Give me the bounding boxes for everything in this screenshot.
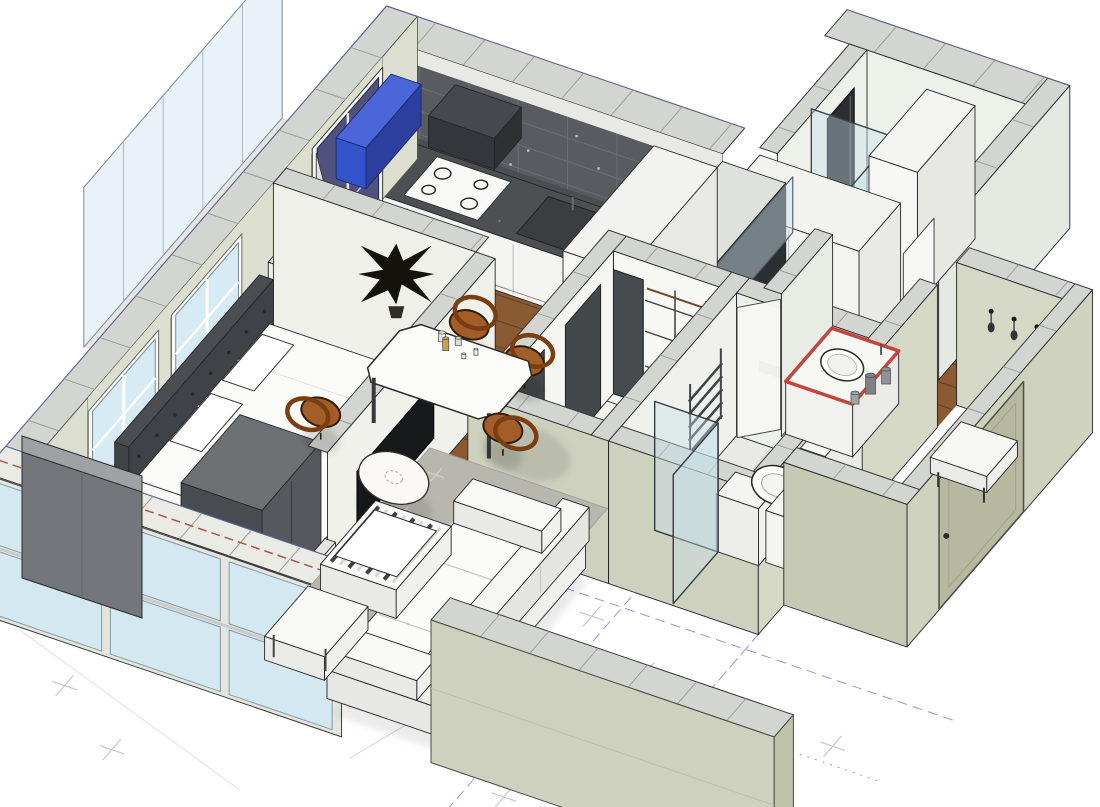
candle-top xyxy=(462,353,466,355)
headboard-button xyxy=(155,434,159,438)
plant xyxy=(358,244,434,305)
counter-speckle xyxy=(499,220,501,222)
tile-speckle xyxy=(597,167,599,169)
hanging-item xyxy=(1011,330,1018,340)
headboard-button xyxy=(209,372,213,376)
bottle-top xyxy=(851,391,859,395)
door-handle xyxy=(943,533,949,539)
headboard-button xyxy=(137,454,141,458)
tile-speckle xyxy=(509,163,511,165)
bottle-top xyxy=(882,367,891,371)
tile-speckle xyxy=(575,135,577,137)
bottle-top xyxy=(443,337,449,340)
bottle xyxy=(866,375,876,394)
headboard-button xyxy=(263,309,267,313)
headboard-button xyxy=(245,330,249,334)
tile-speckle xyxy=(527,149,529,151)
bottle-top xyxy=(455,337,461,340)
bottle-top xyxy=(866,373,876,378)
headboard-button xyxy=(191,392,195,396)
hanging-item xyxy=(988,322,995,332)
bathroom-door-leaf xyxy=(737,299,781,437)
apartment-3d-view xyxy=(0,0,1100,807)
candle-top xyxy=(474,348,478,350)
headboard-button xyxy=(173,413,177,417)
bottle-top xyxy=(439,331,446,334)
headboard-button xyxy=(227,351,231,355)
bottle xyxy=(443,338,449,350)
apartment-render-canvas xyxy=(0,0,1100,807)
